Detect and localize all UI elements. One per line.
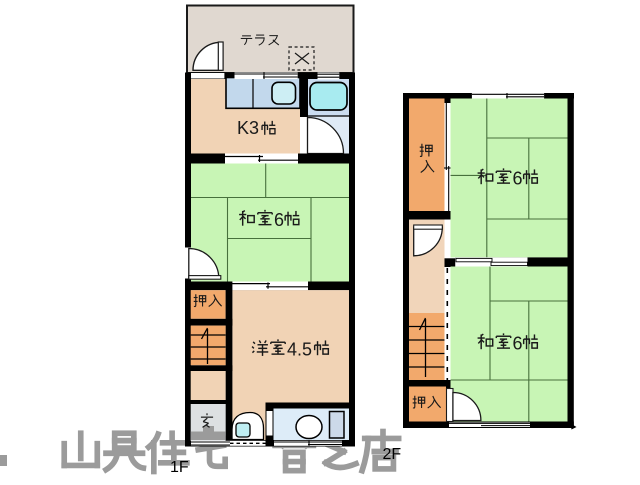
svg-text:6: 6 bbox=[513, 334, 523, 354]
svg-text:4.5: 4.5 bbox=[287, 340, 312, 360]
svg-text:1F: 1F bbox=[170, 459, 189, 476]
svg-text:K3: K3 bbox=[237, 118, 259, 138]
svg-text:2F: 2F bbox=[383, 446, 402, 463]
svg-text:6: 6 bbox=[513, 169, 523, 189]
svg-text:6: 6 bbox=[274, 210, 284, 230]
